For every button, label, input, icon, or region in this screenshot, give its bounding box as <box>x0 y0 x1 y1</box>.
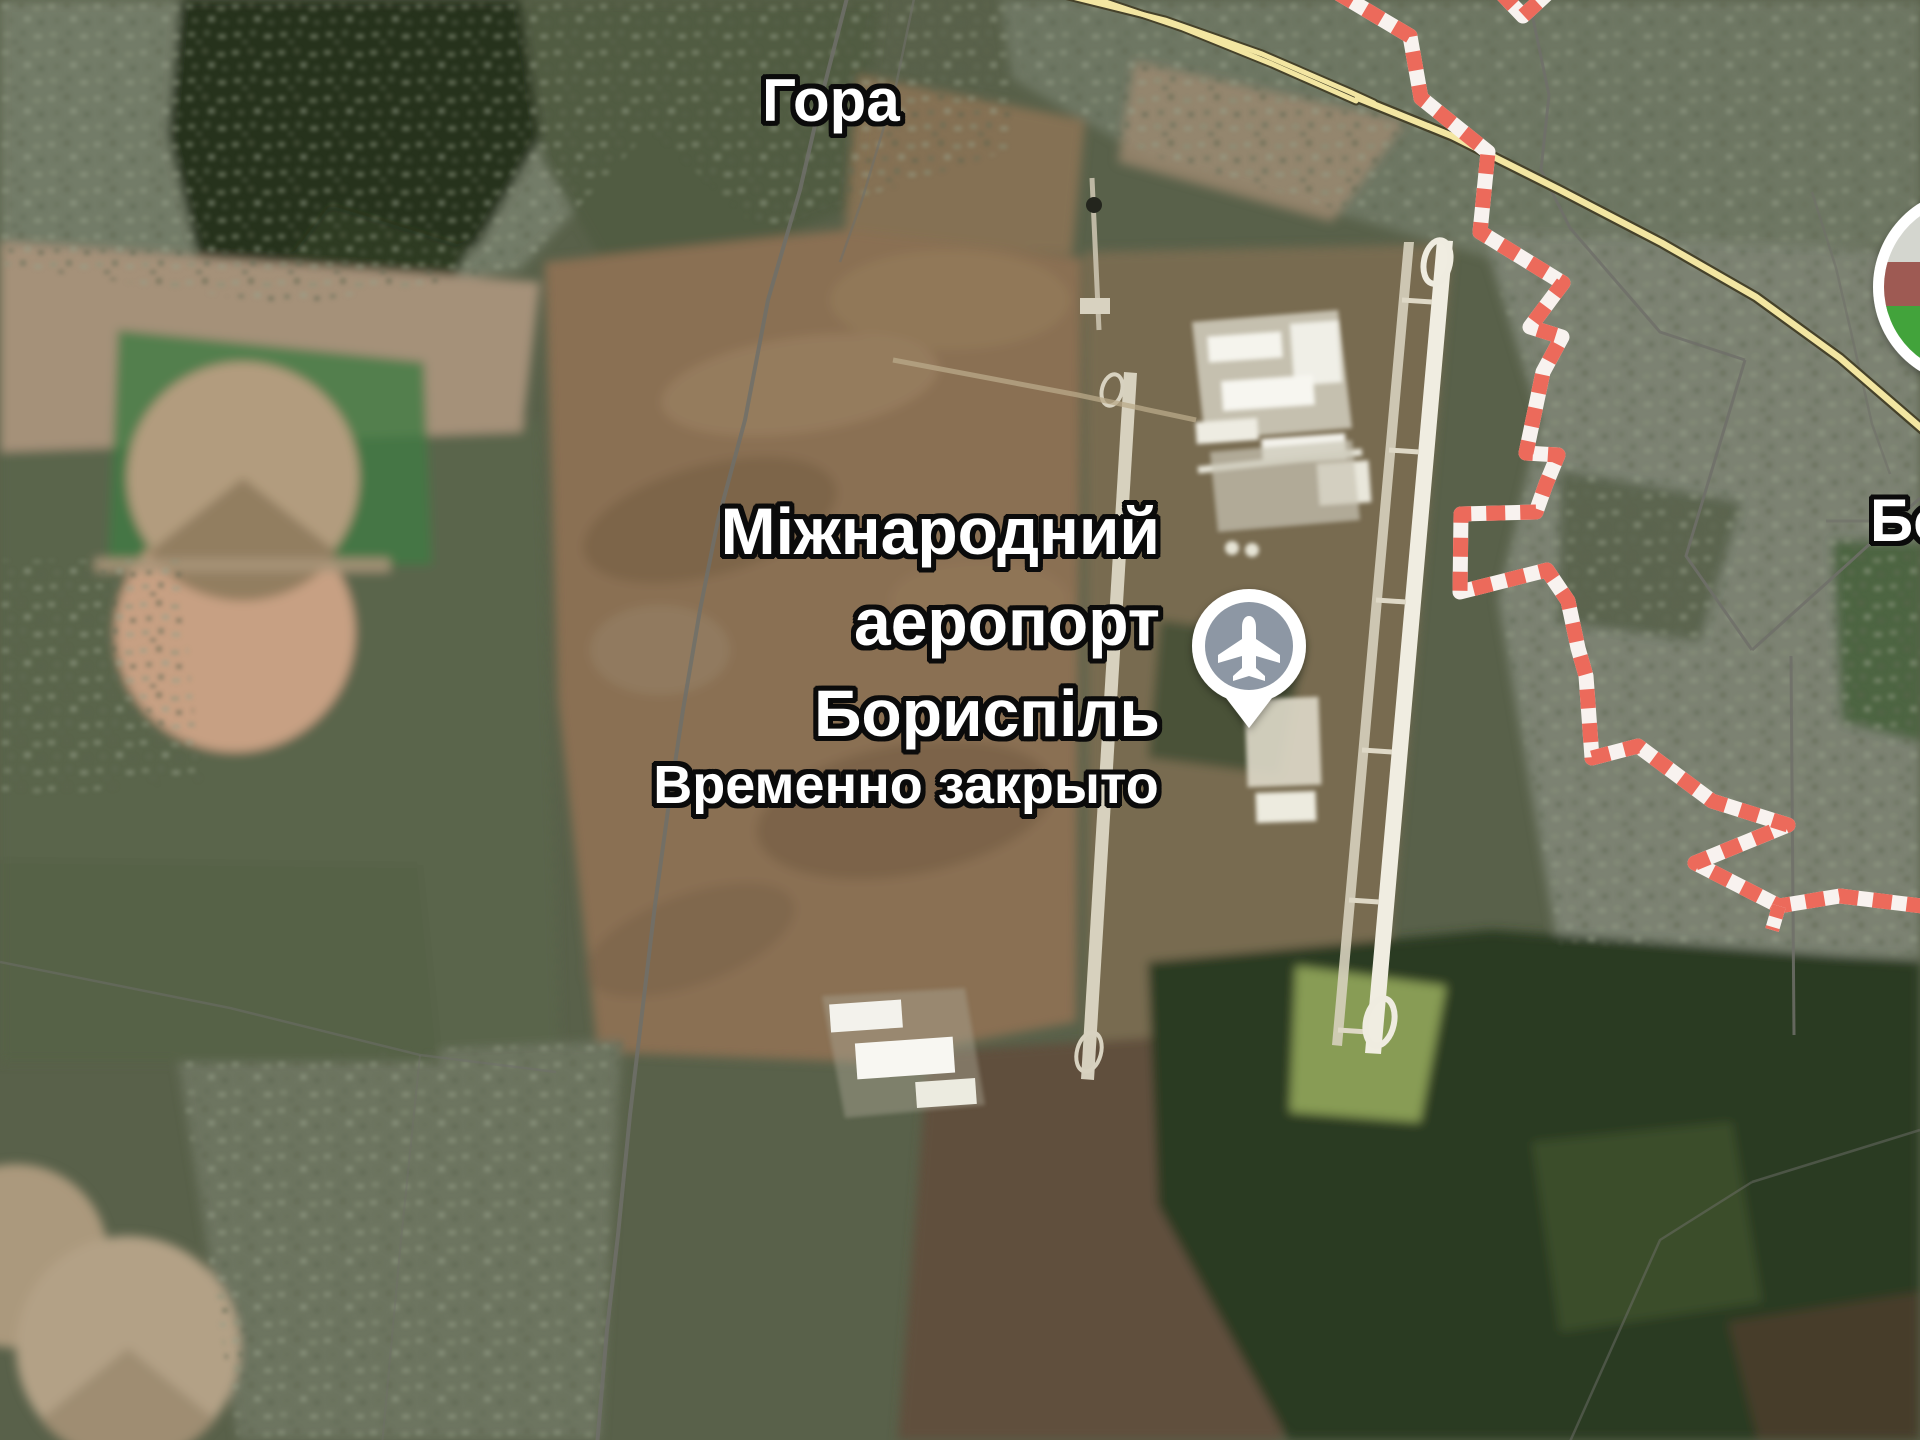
airport-name-line1: Міжнародний <box>721 486 1160 577</box>
airport-name-line2: аеропорт <box>721 577 1160 668</box>
label-town-right-partial[interactable]: Бо <box>1870 486 1920 555</box>
label-airport-name[interactable]: Міжнародний аеропорт Бориспіль <box>721 486 1160 759</box>
label-airport-status: Временно закрыто <box>648 754 1164 816</box>
label-town-hora[interactable]: Гора <box>762 66 900 135</box>
satellite-map-canvas[interactable]: Гора Міжнародний аеропорт Бориспіль Врем… <box>0 0 1920 1440</box>
airport-name-line3: Бориспіль <box>721 668 1160 759</box>
